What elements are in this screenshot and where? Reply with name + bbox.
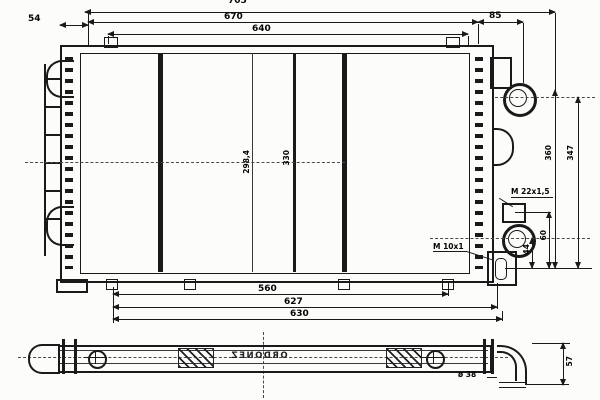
screw-plug [426,350,445,369]
dim-label-44: 44 [523,244,531,254]
right-top-bracket [490,57,512,89]
dim-line-360 [555,90,556,268]
dim-line-44 [532,238,533,268]
hatch-section [178,348,214,368]
left-bracket-rung [44,134,60,136]
screw-cross [95,351,96,364]
dim-line-560 [113,294,448,295]
dim-line-60 [549,212,550,268]
extension-line [88,13,89,45]
dim-label-54: 54 [28,15,41,24]
dim-line-54 [60,25,88,26]
extension-line [527,384,569,385]
dim-line-670 [88,22,478,23]
extension-line [555,13,556,90]
left-hose-port [46,60,74,98]
brand-watermark: ORDONEZ [230,352,288,361]
extension-line [113,287,114,323]
mount-tab-top [446,37,460,48]
dim-line-630 [113,319,502,320]
extension-line [497,283,498,309]
dim-label-670: 670 [224,13,243,22]
dim-label-outlet-dia: ø 38 [458,371,476,379]
dim-label-core-b: 330 [283,150,291,166]
dim-label-core-a: 298,4 [243,150,251,174]
leader-line [487,377,497,378]
thread-label-m22: M 22x1,5 [511,188,550,196]
clamp-band [491,339,494,374]
left-hose-port [46,206,74,246]
extension-line [448,283,449,296]
filler-neck-inner [509,89,527,107]
dim-label-640: 640 [252,25,271,34]
left-bracket-rung [44,106,60,108]
dim-label-627: 627 [284,298,303,307]
dim-line-627 [113,307,497,308]
dim-label-347: 347 [567,145,575,161]
radiator-core [80,53,470,274]
extension-line [478,24,479,44]
mount-tab-bottom [106,279,118,290]
extension-line [523,23,524,83]
radiator-technical-drawing: 705 670 85 640 54 298,4 330 360 347 60 4… [0,0,600,400]
dim-label-85: 85 [489,12,502,21]
dim-line-overall [85,12,555,13]
dim-line-85 [478,22,523,23]
tube-inner-line [60,363,488,364]
clamp-band [483,339,486,374]
screw-plug [88,350,107,369]
dim-line-347 [578,97,579,268]
extension-line [505,268,592,269]
dim-label-overall: 705 [228,0,247,6]
leader-underline-m22 [511,197,553,198]
left-tank-foot [56,279,88,293]
extension-line [468,36,469,46]
dim-line-57 [563,343,564,385]
mount-tab-bottom [184,279,196,290]
bracket-slot [495,258,507,280]
dim-line-640 [108,34,468,35]
hatch-section [386,348,422,368]
screw-cross [433,351,434,364]
thread-label-m10: M 10x1 [433,243,464,251]
centerline [430,238,590,239]
centerline [25,162,345,163]
side-bump [492,128,514,166]
clamp-band [62,339,65,374]
dim-label-630: 630 [290,310,309,319]
dim-label-57: 57 [566,356,574,366]
extension-line [515,212,551,213]
drain-boss-m22 [502,203,526,223]
leader-underline-m10 [433,251,467,252]
extension-line [108,36,109,44]
elbow-mouth [499,382,526,388]
dim-label-560: 560 [258,285,277,294]
left-bracket-rung [44,190,60,192]
extension-line [532,343,570,344]
dim-label-360: 360 [545,145,553,161]
mount-tab-top [104,37,118,48]
clamp-band [74,339,77,374]
side-view-end-cap [28,344,60,374]
extension-line [502,311,503,321]
mount-tab-bottom [338,279,350,290]
dim-label-60: 60 [540,230,548,240]
